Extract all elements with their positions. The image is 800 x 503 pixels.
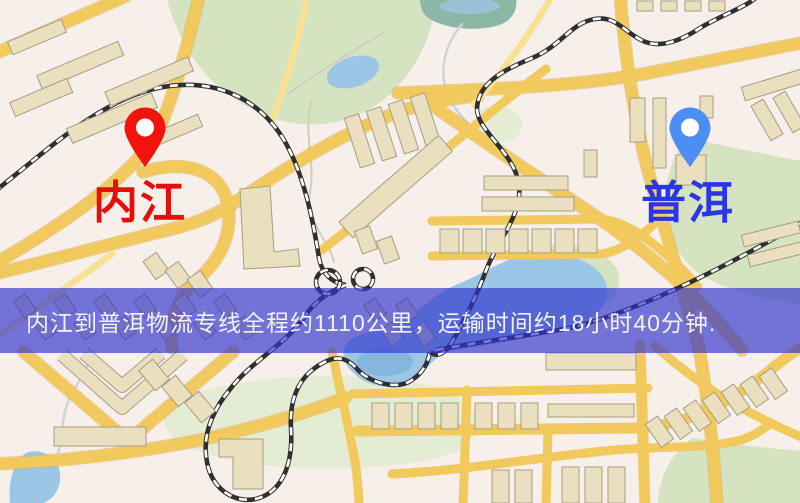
map-viewport: 内江 普洱 内江到普洱物流专线全程约1110公里，运输时间约18小时40分钟. (0, 0, 800, 503)
route-info-banner: 内江到普洱物流专线全程约1110公里，运输时间约18小时40分钟. (0, 288, 800, 353)
origin-label: 内江 (93, 181, 187, 226)
destination-label: 普洱 (641, 181, 735, 226)
route-info-text: 内江到普洱物流专线全程约1110公里，运输时间约18小时40分钟. (26, 304, 716, 338)
destination-pin-icon[interactable] (663, 102, 717, 168)
origin-pin-icon[interactable] (118, 102, 172, 168)
map-canvas[interactable] (0, 0, 800, 503)
